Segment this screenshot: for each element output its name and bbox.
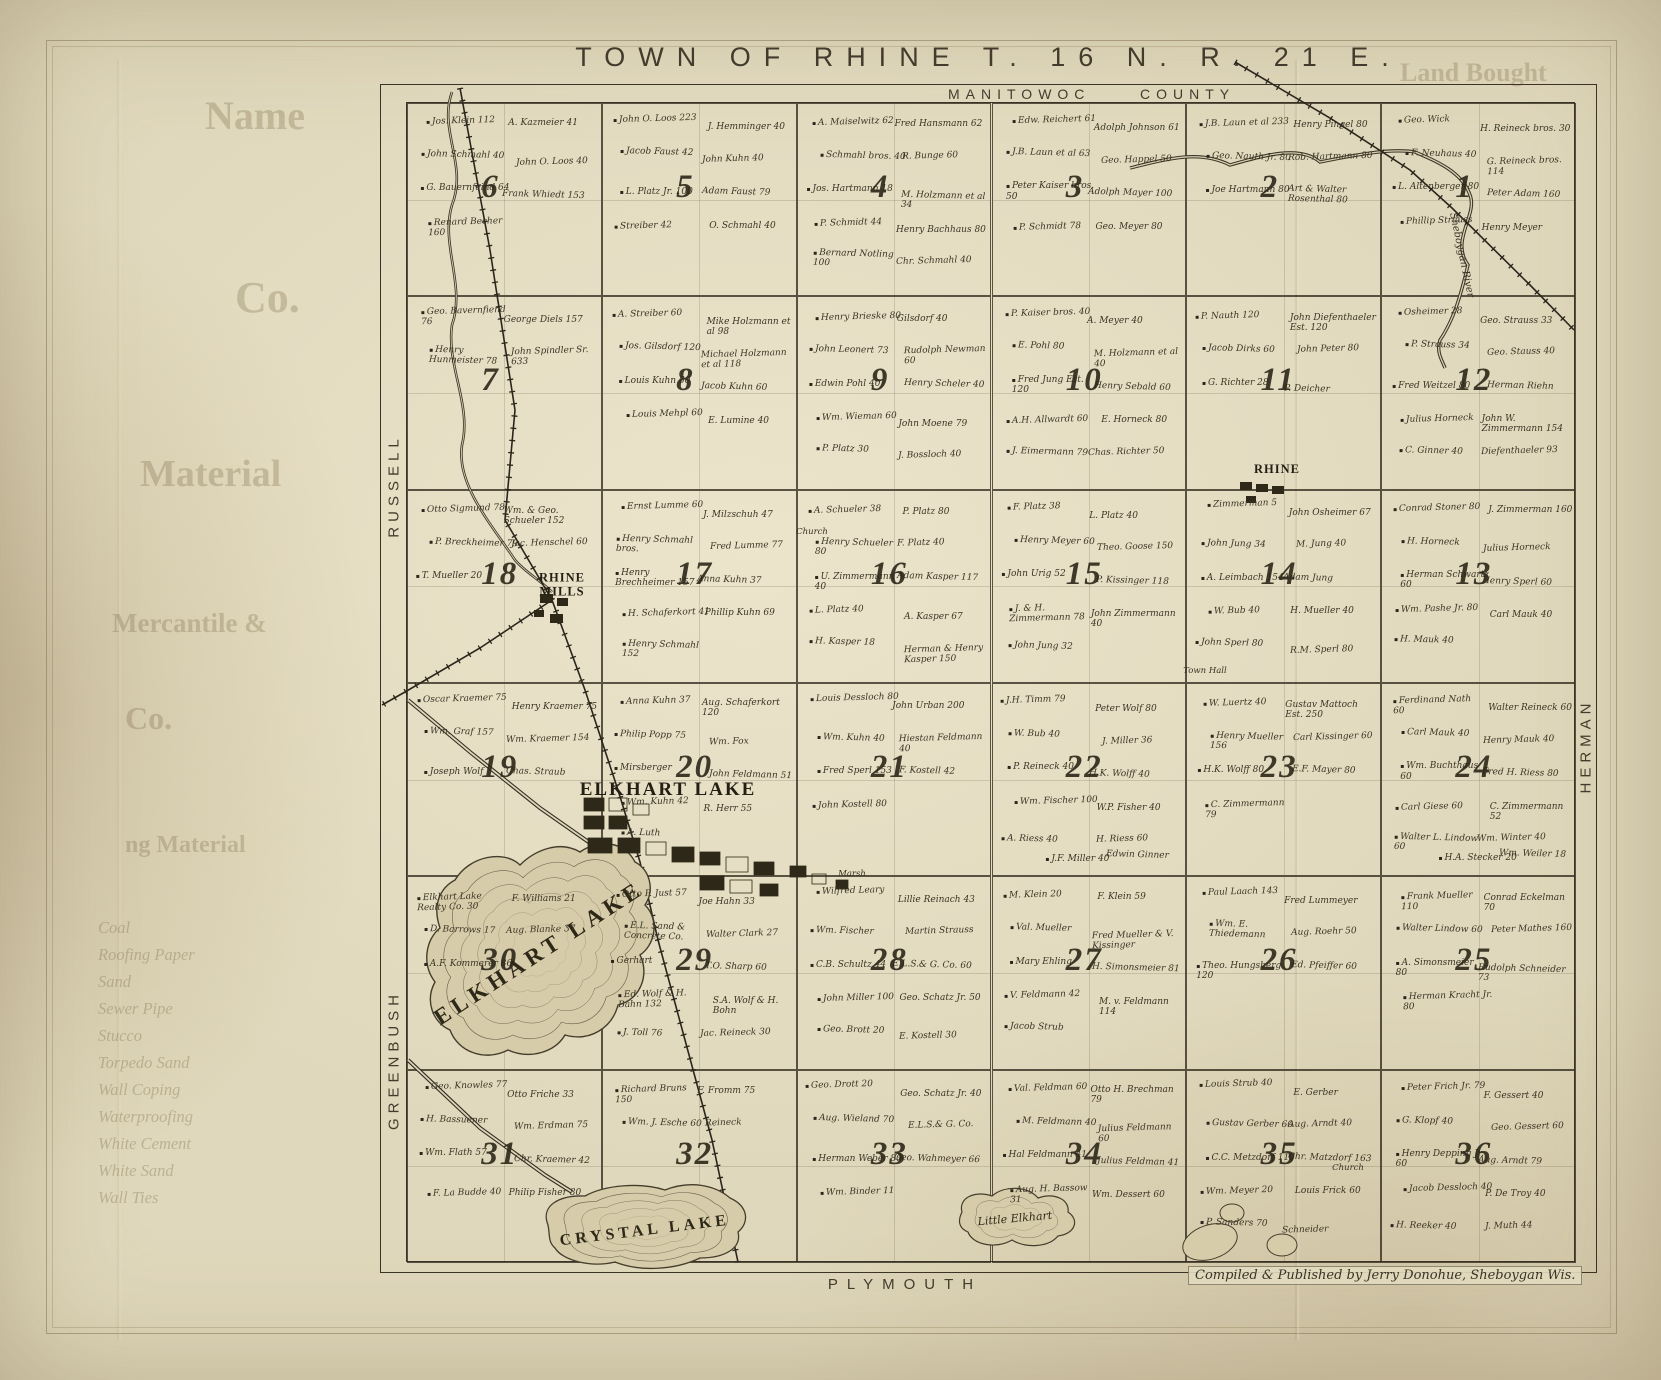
section-number-15: 15 bbox=[1066, 556, 1103, 593]
bleedthrough-word: Name bbox=[205, 92, 305, 139]
parcel-owner-label: D. Barrows 17 bbox=[424, 924, 496, 936]
section-28: 28Wilfred LearyLillie Reinach 43Wm. Fisc… bbox=[797, 876, 992, 1069]
parcel-owner-label: J. Milzschuh 47 bbox=[703, 510, 773, 520]
parcel-owner-label: A. Streiber 60 bbox=[612, 308, 682, 320]
parcel-owner-label: C. Zimmermann 79 bbox=[1204, 798, 1295, 821]
parcel-owner-label: Louis Dessloch 80 bbox=[810, 691, 899, 704]
section-7: 7Geo. Bavernfiend 76George Diels 157Henr… bbox=[407, 296, 602, 489]
section-number-4: 4 bbox=[871, 169, 890, 206]
parcel-owner-label: Henry Mauk 40 bbox=[1483, 734, 1555, 746]
parcel-owner-label: John Osheimer 67 bbox=[1289, 508, 1371, 518]
parcel-owner-label: Henry Scheler 40 bbox=[904, 378, 985, 390]
bleedthrough-list-item: Sand bbox=[98, 972, 131, 992]
parcel-owner-label: Gerhart bbox=[611, 956, 653, 966]
parcel-owner-label: John W. Zimmermann 154 bbox=[1482, 414, 1573, 434]
section-number-32: 32 bbox=[676, 1136, 713, 1173]
parcel-owner-label: Geo. Stauss 40 bbox=[1487, 346, 1555, 358]
parcel-owner-label: Jos. Klein 112 bbox=[426, 115, 495, 127]
parcel-owner-label: Jacob Dirks 60 bbox=[1202, 343, 1275, 355]
parcel-owner-label: Val. Feldman 60 bbox=[1008, 1082, 1088, 1094]
parcel-owner-label: Osheimer 28 bbox=[1398, 306, 1463, 318]
parcel-owner-label: Aug. Wieland 70 bbox=[813, 1113, 894, 1125]
paper-crease-2 bbox=[116, 60, 122, 1340]
bleedthrough-list-item: Torpedo Sand bbox=[98, 1053, 190, 1073]
parcel-owner-label: S.A. Wolf & H. Bohn bbox=[713, 996, 796, 1016]
parcel-owner-label: F. Platz 40 bbox=[897, 538, 945, 549]
parcel-owner-label: Geo. Drott 20 bbox=[805, 1079, 873, 1091]
parcel-owner-label: T.O. Sharp 60 bbox=[705, 962, 767, 974]
parcel-owner-label: F. Williams 21 bbox=[512, 894, 576, 904]
parcel-owner-label: Jacob Dessloch 40 bbox=[1403, 1181, 1493, 1194]
parcel-owner-label: E. Gerber bbox=[1293, 1088, 1338, 1098]
section-number-21: 21 bbox=[871, 749, 908, 786]
parcel-owner-label: C. Zimmermann 52 bbox=[1490, 802, 1575, 822]
parcel-owner-label: Schneider bbox=[1282, 1224, 1329, 1235]
parcel-owner-label: A. Maiselwitz 62 bbox=[812, 116, 894, 128]
parcel-owner-label: Jacob Kuhn 60 bbox=[701, 382, 768, 394]
parcel-owner-label: Diefenthaeler 93 bbox=[1481, 445, 1558, 457]
parcel-owner-label: Geo. Schatz Jr. 40 bbox=[900, 1089, 981, 1099]
parcel-owner-label: P. Platz 30 bbox=[816, 443, 869, 455]
parcel-owner-label: Geo. Happel 50 bbox=[1101, 154, 1172, 166]
parcel-owner-label: Anna Kuhn 37 bbox=[620, 695, 691, 707]
parcel-owner-label: Joseph Wolf bbox=[424, 767, 484, 777]
section-number-18: 18 bbox=[481, 556, 518, 593]
parcel-owner-label: Louis Frick 60 bbox=[1295, 1186, 1361, 1196]
parcel-owner-label: Rob. Hartmann 80 bbox=[1288, 151, 1373, 163]
parcel-owner-label: Fred Lummeyer bbox=[1284, 896, 1357, 906]
parcel-owner-label: Wm. Fischer bbox=[810, 925, 874, 937]
section-number-12: 12 bbox=[1455, 362, 1492, 399]
section-number-31: 31 bbox=[481, 1136, 518, 1173]
parcel-owner-label: Gustav Mattoch Est. 250 bbox=[1285, 700, 1376, 720]
parcel-owner-label: Frank Mueller 110 bbox=[1401, 889, 1492, 912]
parcel-owner-label: Julius Feldman 41 bbox=[1097, 1156, 1179, 1168]
parcel-owner-label: H. Riess 60 bbox=[1096, 833, 1148, 845]
parcel-owner-label: Henry Meyer bbox=[1482, 223, 1542, 233]
parcel-owner-label: Julius Horneck bbox=[1399, 413, 1473, 425]
parcel-owner-label: L. Platz 40 bbox=[1089, 511, 1138, 521]
town-hall-label: Town Hall bbox=[1183, 666, 1227, 676]
parcel-owner-label: T. Mueller 20 bbox=[416, 571, 482, 581]
parcel-owner-label: Chr. Kraemer 42 bbox=[514, 1154, 590, 1166]
parcel-owner-label: H. Reeker 40 bbox=[1390, 1220, 1457, 1232]
parcel-owner-label: R. Herr 55 bbox=[703, 804, 752, 814]
edge-label-herman: HERMAN bbox=[1578, 698, 1595, 793]
parcel-owner-label: Hiestan Feldmann 40 bbox=[899, 732, 990, 755]
parcel-owner-label: Schmahl bros. 40 bbox=[820, 150, 906, 162]
parcel-owner-label: E.F. Mayer 80 bbox=[1292, 764, 1356, 776]
bleedthrough-list-item: White Cement bbox=[98, 1134, 191, 1154]
parcel-owner-label: Gilsdorf 40 bbox=[897, 314, 948, 324]
parcel-owner-label: F. La Budde 40 bbox=[426, 1187, 501, 1199]
section-24: 24Ferdinand Nath 60Walter Reineck 60Carl… bbox=[1381, 683, 1576, 876]
parcel-owner-label: P. Breckheimer 79 bbox=[429, 536, 518, 549]
parcel-owner-label: Herman & Henry Kasper 150 bbox=[903, 643, 990, 666]
parcel-owner-label: A. Meyer 40 bbox=[1087, 316, 1143, 326]
parcel-owner-label: Wm. & Geo. Schueler 152 bbox=[504, 506, 595, 526]
bleedthrough-word: Co. bbox=[125, 700, 172, 737]
parcel-owner-label: Herman Riehn bbox=[1487, 380, 1554, 392]
section-number-13: 13 bbox=[1455, 556, 1492, 593]
parcel-owner-label: John Jung 34 bbox=[1201, 539, 1266, 551]
section-number-11: 11 bbox=[1261, 362, 1296, 399]
edge-label-russell: RUSSELL bbox=[386, 434, 403, 537]
parcel-owner-label: John Diefenthaeler Est. 120 bbox=[1290, 313, 1380, 333]
parcel-owner-label: John Urig 52 bbox=[1001, 569, 1065, 579]
parcel-owner-label: J.B. Laun et al 63 bbox=[1006, 147, 1090, 159]
parcel-owner-label: Walter Clark 27 bbox=[706, 928, 778, 940]
parcel-owner-label: Edwin Pohl 40 bbox=[809, 379, 881, 389]
parcel-owner-label: Henry Meyer 60 bbox=[1014, 534, 1095, 546]
section-number-8: 8 bbox=[676, 362, 695, 399]
section-number-10: 10 bbox=[1066, 362, 1103, 399]
church-label-s16: Church bbox=[796, 527, 828, 537]
parcel-owner-label: John O. Loos 223 bbox=[613, 112, 697, 124]
section-29: 29Otto P. Just 57Joe Hahn 33E.L. Sand & … bbox=[602, 876, 797, 1069]
parcel-owner-label: Jacob Faust 42 bbox=[620, 146, 694, 158]
parcel-owner-label: P. Sanders 70 bbox=[1200, 1217, 1268, 1229]
parcel-owner-label: H. Schaferkort 41 bbox=[622, 607, 710, 620]
parcel-owner-label: H. Kasper 18 bbox=[809, 636, 875, 648]
section-22: 22J.H. Timm 79Peter Wolf 80W. Bub 40J. M… bbox=[992, 683, 1187, 876]
section-27: 27M. Klein 20F. Klein 59Val. MuellerFred… bbox=[992, 876, 1187, 1069]
parcel-owner-label: Fred Mueller & V. Kissinger bbox=[1092, 929, 1183, 952]
parcel-owner-label: Geo. Brott 20 bbox=[817, 1024, 885, 1036]
section-number-3: 3 bbox=[1066, 169, 1085, 206]
parcel-owner-label: Frank Whiedt 153 bbox=[502, 189, 585, 201]
parcel-owner-label: John Kostell 80 bbox=[811, 799, 886, 811]
parcel-owner-label: H. Mauk 40 bbox=[1394, 634, 1454, 646]
parcel-owner-label: Geo. Strauss 33 bbox=[1480, 316, 1552, 326]
parcel-owner-label: Fred H. Riess 80 bbox=[1482, 767, 1559, 779]
section-9: 9Henry Brieske 80Gilsdorf 40John Leonert… bbox=[797, 296, 992, 489]
parcel-owner-label: Martin Strauss bbox=[905, 925, 974, 937]
bleedthrough-word: ng Material bbox=[125, 832, 246, 859]
parcel-owner-label: M. Jung 40 bbox=[1296, 539, 1346, 550]
section-26: 26Paul Laach 143Fred LummeyerWm. E. Thie… bbox=[1186, 876, 1381, 1069]
parcel-owner-label: A. Schueler 38 bbox=[808, 504, 881, 516]
parcel-owner-label: Geo. Schatz Jr. 50 bbox=[899, 993, 980, 1003]
section-36: 36Peter Frich Jr. 79F. Gessert 40G. Klop… bbox=[1381, 1070, 1576, 1263]
section-8: 8A. Streiber 60Mike Holzmann et al 98Jos… bbox=[602, 296, 797, 489]
parcel-owner-label: P. Schmidt 78 bbox=[1013, 221, 1081, 233]
section-14: 14Zimmerman 5John Osheimer 67John Jung 3… bbox=[1186, 490, 1381, 683]
parcel-owner-label: O. Schmahl 40 bbox=[709, 221, 775, 231]
bleedthrough-list-item: Wall Ties bbox=[98, 1188, 158, 1208]
parcel-owner-label: A. Kazmeier 41 bbox=[508, 118, 578, 128]
parcel-owner-label: Conrad Stoner 80 bbox=[1393, 502, 1481, 515]
township-section-grid: 6Jos. Klein 112A. Kazmeier 41John Schmah… bbox=[406, 102, 1575, 1262]
parcel-owner-label: Walter Reineck 60 bbox=[1488, 703, 1572, 713]
section-number-28: 28 bbox=[871, 942, 908, 979]
parcel-owner-label: Streiber 42 bbox=[614, 220, 672, 232]
parcel-owner-label: John Spindler Sr. 633 bbox=[511, 345, 601, 368]
section-number-19: 19 bbox=[481, 749, 518, 786]
bleedthrough-word: Material bbox=[140, 452, 281, 496]
section-10: 10P. Kaiser bros. 40A. Meyer 40E. Pohl 8… bbox=[992, 296, 1187, 489]
parcel-owner-label: Wm. Fox bbox=[709, 736, 749, 747]
parcel-owner-label: G. Klopf 40 bbox=[1396, 1115, 1453, 1127]
section-number-7: 7 bbox=[481, 362, 500, 399]
parcel-owner-label: Julius Horneck bbox=[1483, 542, 1551, 554]
parcel-owner-label: Jacob Strub bbox=[1004, 1021, 1064, 1033]
section-19: 19Oscar Kraemer 75Henry Kraemer 75Wm. Gr… bbox=[407, 683, 602, 876]
parcel-owner-label: John Peter 80 bbox=[1297, 343, 1359, 355]
parcel-owner-label: Jac. Reineck 30 bbox=[699, 1027, 770, 1039]
parcel-owner-label: J. & H. Zimmermann 78 bbox=[1008, 601, 1099, 624]
parcel-owner-label: F. Klein 59 bbox=[1097, 892, 1145, 902]
section-number-25: 25 bbox=[1455, 942, 1492, 979]
parcel-owner-label: Oscar Kraemer 75 bbox=[417, 692, 507, 705]
parcel-owner-label: Mirsberger bbox=[614, 763, 672, 773]
parcel-owner-label: P. Nauth 120 bbox=[1195, 310, 1260, 322]
parcel-owner-label: M. Holzmann et al 34 bbox=[901, 190, 991, 213]
parcel-owner-label: Henry Bachhaus 80 bbox=[896, 225, 986, 235]
section-number-24: 24 bbox=[1455, 749, 1492, 786]
publisher-credit: Compiled & Published by Jerry Donohue, S… bbox=[1188, 1266, 1582, 1285]
section-33: 33Geo. Drott 20Geo. Schatz Jr. 40Aug. Wi… bbox=[797, 1070, 992, 1263]
parcel-owner-label: Jac. Henschel 60 bbox=[511, 536, 588, 548]
parcel-owner-label: Peter Adam 160 bbox=[1487, 188, 1561, 200]
parcel-owner-label: H. Horneck bbox=[1401, 536, 1460, 548]
parcel-owner-label: John Sperl 80 bbox=[1195, 637, 1263, 649]
parcel-owner-label: Carl Kissinger 60 bbox=[1292, 731, 1372, 743]
parcel-owner-label: W. Bub 40 bbox=[1007, 728, 1059, 740]
parcel-owner-label: Michael Holzmann et al 118 bbox=[701, 348, 792, 371]
section-number-30: 30 bbox=[481, 942, 518, 979]
section-number-34: 34 bbox=[1066, 1136, 1103, 1173]
parcel-owner-label: John Miller 100 bbox=[817, 992, 894, 1004]
parcel-owner-label: John Jung 32 bbox=[1008, 640, 1073, 652]
parcel-owner-label: Mike Holzmann et al 98 bbox=[707, 317, 796, 337]
village-rhine-mills: RHINE MILLS bbox=[532, 571, 592, 599]
parcel-owner-label: John Kuhn 40 bbox=[702, 153, 764, 165]
parcel-owner-label: John Zimmermann 40 bbox=[1091, 609, 1182, 629]
parcel-owner-label: Geo. Nauth Jr. 80 bbox=[1206, 151, 1291, 163]
parcel-owner-label: J. Eimermann 79 bbox=[1006, 445, 1088, 457]
parcel-owner-label: Peter Frich Jr. 79 bbox=[1401, 1081, 1486, 1093]
marsh-label: Marsh bbox=[838, 869, 866, 879]
parcel-owner-label: R.M. Sperl 80 bbox=[1290, 644, 1354, 656]
parcel-owner-label: M. Holzmann et al 40 bbox=[1094, 347, 1185, 370]
parcel-owner-label: Otto H. Brechman 79 bbox=[1090, 1085, 1181, 1105]
parcel-owner-label: John Urban 200 bbox=[892, 701, 964, 711]
section-number-5: 5 bbox=[676, 169, 695, 206]
parcel-owner-label: M. Klein 20 bbox=[1002, 889, 1061, 901]
parcel-owner-label: A. Luth bbox=[621, 828, 661, 839]
parcel-owner-label: Adam Faust 79 bbox=[702, 186, 771, 198]
parcel-owner-label: Walter L. Lindow 60 bbox=[1394, 832, 1485, 855]
section-1: 1Geo. WickH. Reineck bros. 30F. Neuhaus … bbox=[1381, 103, 1576, 296]
section-5: 5John O. Loos 223J. Hemminger 40Jacob Fa… bbox=[602, 103, 797, 296]
parcel-owner-label: P. De Troy 40 bbox=[1485, 1189, 1545, 1199]
parcel-owner-label: J. Toll 76 bbox=[617, 1027, 663, 1038]
section-21: 21Louis Dessloch 80John Urban 200Wm. Kuh… bbox=[797, 683, 992, 876]
parcel-owner-label: Adolph Mayer 100 bbox=[1088, 187, 1173, 199]
parcel-owner-label: Wm. Binder 11 bbox=[819, 1186, 894, 1198]
parcel-owner-label: Wilfred Leary bbox=[816, 885, 885, 897]
parcel-owner-label: Jos. Gilsdorf 120 bbox=[619, 341, 701, 353]
parcel-owner-label: Theo. Goose 150 bbox=[1096, 541, 1172, 553]
section-number-9: 9 bbox=[871, 362, 890, 399]
section-number-26: 26 bbox=[1261, 942, 1298, 979]
parcel-owner-label: W. Bub 40 bbox=[1208, 606, 1260, 618]
parcel-owner-label: Phillip Kuhn 69 bbox=[705, 608, 775, 618]
parcel-owner-label: Carl Mauk 40 bbox=[1401, 727, 1470, 739]
bleedthrough-word: Co. bbox=[235, 272, 300, 323]
parcel-owner-label: Geo. Knowles 77 bbox=[425, 1080, 508, 1092]
parcel-owner-label: Geo. Meyer 80 bbox=[1095, 222, 1162, 232]
parcel-owner-label: H. Bassuener bbox=[419, 1114, 487, 1126]
parcel-owner-label: Wm. Meyer 20 bbox=[1200, 1185, 1273, 1197]
parcel-owner-label: Philip Fisher 80 bbox=[509, 1188, 582, 1198]
parcel-owner-label: H. Mueller 40 bbox=[1290, 606, 1354, 616]
parcel-owner-label: Henry Kraemer 75 bbox=[512, 702, 597, 712]
section-number-23: 23 bbox=[1261, 749, 1298, 786]
section-34: 34Val. Feldman 60Otto H. Brechman 79M. F… bbox=[992, 1070, 1187, 1263]
parcel-owner-label: Chr. Schmahl 40 bbox=[895, 255, 971, 267]
parcel-owner-label: J.F. Miller 40 bbox=[1045, 854, 1109, 864]
parcel-owner-label: Adolph Johnson 61 bbox=[1094, 123, 1180, 133]
section-number-35: 35 bbox=[1261, 1136, 1298, 1173]
bleedthrough-list-item: White Sand bbox=[98, 1161, 174, 1181]
parcel-owner-label: H. Reineck bros. 30 bbox=[1480, 124, 1570, 134]
section-31: 31Geo. Knowles 77Otto Friche 33H. Bassue… bbox=[407, 1070, 602, 1263]
parcel-owner-label: Wm. Dessert 60 bbox=[1092, 1190, 1165, 1200]
parcel-owner-label: Wm. J. Esche 60 bbox=[622, 1116, 702, 1128]
parcel-owner-label: Joe Hahn 33 bbox=[698, 897, 754, 907]
parcel-owner-label: Chas. Richter 50 bbox=[1088, 445, 1165, 457]
section-32: 32Richard Bruns 150F. Fromm 75Wm. J. Esc… bbox=[602, 1070, 797, 1263]
section-30: 30Elkhart Lake Realty Co. 30F. Williams … bbox=[407, 876, 602, 1069]
parcel-owner-label: H. Simonsmeier 81 bbox=[1091, 962, 1179, 975]
parcel-owner-label: Ed. Pfeiffer 60 bbox=[1291, 960, 1357, 972]
parcel-owner-label: Fred Lumme 77 bbox=[710, 540, 783, 552]
parcel-owner-label: Otto Friche 33 bbox=[507, 1090, 574, 1100]
parcel-owner-label: Zimmerman 5 bbox=[1206, 498, 1276, 510]
parcel-owner-label: Wm. Kuhn 40 bbox=[817, 732, 885, 744]
section-number-22: 22 bbox=[1066, 749, 1103, 786]
village-elkhart-lake: ELKHART LAKE bbox=[580, 779, 757, 801]
parcel-owner-label: Wm. Graf 157 bbox=[424, 726, 494, 738]
section-number-2: 2 bbox=[1261, 169, 1280, 206]
parcel-owner-label: P. Reineck 40 bbox=[1007, 762, 1074, 772]
parcel-owner-label: E. Lumine 40 bbox=[708, 416, 769, 426]
parcel-owner-label: Richard Bruns 150 bbox=[615, 1083, 706, 1106]
parcel-owner-label: Geo. Wick bbox=[1398, 115, 1450, 127]
parcel-owner-label: Rudolph Newman 60 bbox=[904, 344, 991, 367]
parcel-owner-label: M. v. Feldmann 114 bbox=[1099, 997, 1185, 1017]
section-6: 6Jos. Klein 112A. Kazmeier 41John Schmah… bbox=[407, 103, 602, 296]
parcel-owner-label: Edwin Ginner bbox=[1106, 850, 1169, 862]
section-4: 4A. Maiselwitz 62Fred Hansmann 62Schmahl… bbox=[797, 103, 992, 296]
parcel-owner-label: Wm. Fischer 100 bbox=[1014, 795, 1098, 807]
parcel-owner-label: P. Platz 80 bbox=[903, 507, 950, 517]
parcel-owner-label: E.L. Sand & Concrete Co. bbox=[623, 921, 714, 944]
parcel-owner-label: Renard Becher 160 bbox=[427, 216, 518, 239]
parcel-owner-label: V. Feldmann 42 bbox=[1004, 989, 1080, 1001]
parcel-owner-label: Aug. H. Bassow 31 bbox=[1010, 1182, 1101, 1205]
bleedthrough-list-item: Wall Coping bbox=[98, 1080, 180, 1100]
parcel-owner-label: F. Gessert 40 bbox=[1484, 1091, 1544, 1101]
parcel-owner-label: Adam Kasper 117 bbox=[897, 571, 978, 583]
parcel-owner-label: P. Kissinger 118 bbox=[1096, 575, 1169, 587]
parcel-owner-label: Henry Sperl 60 bbox=[1482, 576, 1552, 588]
parcel-owner-label: Elkhart Lake Realty Co. 30 bbox=[417, 890, 508, 913]
parcel-owner-label: Wm. Flath 57 bbox=[419, 1148, 487, 1158]
parcel-owner-label: Henry Pingel 80 bbox=[1293, 120, 1367, 130]
section-23: 23W. Luertz 40Gustav Mattoch Est. 250Hen… bbox=[1186, 683, 1381, 876]
section-2: 2J.B. Laun et al 233Henry Pingel 80Geo. … bbox=[1186, 103, 1381, 296]
village-rhine: RHINE bbox=[1242, 463, 1312, 477]
parcel-owner-label: Bernard Notling 100 bbox=[813, 248, 904, 271]
parcel-owner-label: A. Kasper 67 bbox=[904, 612, 963, 622]
parcel-owner-label: John Moene 79 bbox=[898, 419, 967, 429]
parcel-owner-label: H.K. Wolff 80 bbox=[1197, 765, 1264, 775]
section-number-14: 14 bbox=[1261, 556, 1298, 593]
parcel-owner-label: E.L.S.& G. Co. bbox=[907, 1119, 973, 1131]
map-title: TOWN OF RHINE T. 16 N. R. 21 E. bbox=[380, 42, 1597, 73]
bleedthrough-list-item: Roofing Paper bbox=[98, 945, 195, 965]
section-15: 15F. Platz 38L. Platz 40Henry Meyer 60Th… bbox=[992, 490, 1187, 683]
parcel-owner-label: E. Kostell 30 bbox=[899, 1031, 957, 1043]
parcel-owner-label: Lillie Reinach 43 bbox=[898, 895, 975, 905]
parcel-owner-label: Henry Hunmeister 78 bbox=[429, 345, 520, 368]
parcel-owner-label: J. Zimmerman 160 bbox=[1488, 505, 1572, 515]
parcel-owner-label: Val. Mueller bbox=[1010, 922, 1072, 934]
section-3: 3Edw. Reichert 61Adolph Johnson 61J.B. L… bbox=[992, 103, 1187, 296]
parcel-owner-label: Edw. Reichert 61 bbox=[1012, 113, 1096, 125]
bleedthrough-list-item: Stucco bbox=[98, 1026, 142, 1046]
parcel-owner-label: J.B. Laun et al 233 bbox=[1198, 117, 1288, 130]
bleedthrough-list-item: Sewer Pipe bbox=[98, 999, 173, 1019]
parcel-owner-label: Ferdinand Nath 60 bbox=[1393, 693, 1484, 716]
section-17: 17Ernst Lumme 60J. Milzschuh 47Henry Sch… bbox=[602, 490, 797, 683]
parcel-owner-label: A. Riess 40 bbox=[1001, 833, 1058, 845]
parcel-owner-label: Conrad Eckelman 70 bbox=[1484, 893, 1575, 913]
parcel-owner-label: Peter Wolf 80 bbox=[1095, 704, 1157, 714]
parcel-owner-label: Henry Brieske 80 bbox=[815, 310, 901, 322]
section-number-16: 16 bbox=[871, 556, 908, 593]
parcel-owner-label: George Diels 157 bbox=[504, 315, 583, 325]
section-12: 12Osheimer 28Geo. Strauss 33P. Strauss 3… bbox=[1381, 296, 1576, 489]
parcel-owner-label: Henry Sebald 60 bbox=[1094, 380, 1171, 392]
parcel-owner-label: J. Bossloch 40 bbox=[898, 450, 962, 462]
parcel-owner-label: Otto Sigmund 78 bbox=[421, 503, 505, 515]
bleedthrough-list-item: Coal bbox=[98, 918, 130, 938]
parcel-owner-label: Aug. Arndt 40 bbox=[1288, 1119, 1352, 1131]
parcel-owner-label: Paul Laach 143 bbox=[1202, 886, 1278, 898]
parcel-owner-label: J. Miller 36 bbox=[1102, 735, 1153, 746]
parcel-owner-label: J. Hemminger 40 bbox=[708, 122, 785, 132]
bleedthrough-word: Mercantile & bbox=[112, 608, 267, 639]
parcel-owner-label: G. Richter 28 bbox=[1202, 378, 1269, 388]
parcel-owner-label: F. Fromm 75 bbox=[697, 1086, 755, 1096]
parcel-owner-label: Art & Walter Rosenthal 80 bbox=[1287, 184, 1378, 207]
section-number-36: 36 bbox=[1455, 1136, 1492, 1173]
parcel-owner-label: Reineck bbox=[705, 1117, 742, 1128]
parcel-owner-label: Louis Mehpl 60 bbox=[626, 408, 703, 420]
parcel-owner-label: Wm. E. Thiedemann bbox=[1209, 919, 1300, 942]
edge-label-greenbush: GREENBUSH bbox=[386, 990, 403, 1130]
parcel-owner-label: L. Platz 40 bbox=[809, 605, 864, 617]
parcel-owner-label: Wm. Erdman 75 bbox=[514, 1120, 588, 1132]
parcel-owner-label: E. Horneck 80 bbox=[1101, 415, 1167, 425]
section-number-17: 17 bbox=[676, 556, 713, 593]
parcel-owner-label: Aug. Schaferkort 120 bbox=[702, 698, 793, 718]
parcel-owner-label: A.H. Allwardt 60 bbox=[1006, 414, 1088, 426]
